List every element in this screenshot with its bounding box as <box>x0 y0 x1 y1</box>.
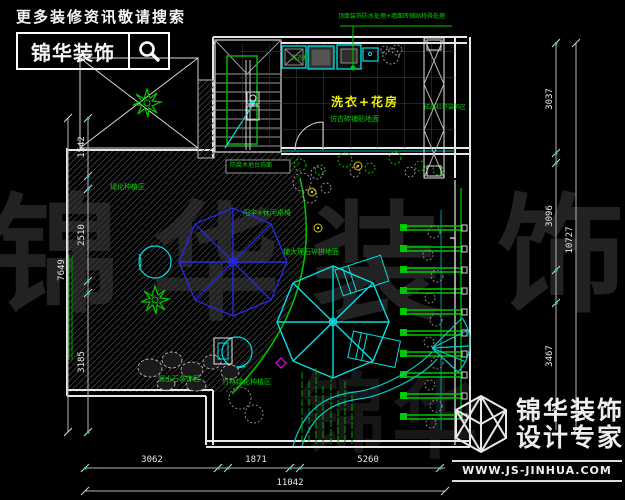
dim-bottom-2: 1871 <box>245 455 267 465</box>
note-washer: 洗衣机 <box>291 56 309 63</box>
dim-bottom-3: 5260 <box>357 455 379 465</box>
magnifier-icon <box>128 34 168 68</box>
note-railing: 成品栏杆装饰区 <box>424 105 466 112</box>
dim-left-2: 2510 <box>77 224 87 246</box>
note-deck: 防腐木地台饰面 <box>230 163 272 170</box>
dim-bottom-total: 11042 <box>276 478 303 488</box>
bamboo-grove <box>302 368 352 444</box>
company-logo-block: 锦华装饰 设计专家 WWW.JS-JINHUA.COM <box>452 392 625 498</box>
dim-right-total: 10727 <box>565 226 575 253</box>
note-planting: 绿化种植区 <box>110 184 145 192</box>
fan-steps <box>432 318 470 372</box>
note-top: 顶面装饰防水处理+墙面砖铺贴特殊处理 <box>338 14 445 21</box>
room-label: 洗衣+花房 <box>331 93 399 110</box>
brand-search-box: 锦华装饰 <box>16 32 170 70</box>
dim-left-3: 3185 <box>77 351 87 373</box>
dim-right-2: 3096 <box>545 205 555 227</box>
plant-symbol <box>133 89 161 117</box>
wood-deck-area <box>67 150 306 394</box>
light-marker <box>354 162 362 170</box>
dim-right-1: 3037 <box>545 88 555 110</box>
cube-logo-icon <box>452 392 510 456</box>
hip-roof-skylight <box>80 58 214 158</box>
light-marker <box>308 188 316 196</box>
brand-name: 锦华装饰 <box>18 34 128 68</box>
promo-header: 更多装修资讯敬请搜索 锦华装饰 <box>16 6 186 70</box>
note-rocks: 假山石装饰区 <box>158 376 200 384</box>
logo-brand: 锦华装饰 <box>516 397 624 424</box>
magenta-marker <box>276 358 286 368</box>
dim-left-1: 1542 <box>77 136 87 158</box>
planting-strip <box>293 152 443 203</box>
logo-tagline: 设计专家 <box>516 424 624 451</box>
note-marble: 铺大理石碎拼地面 <box>283 249 339 257</box>
search-hint-text: 更多装修资讯敬请搜索 <box>16 6 186 27</box>
note-floor: 仿古砖铺贴地面 <box>330 116 379 124</box>
note-umbrella: 阳伞+休闲桌椅 <box>243 210 291 218</box>
light-marker <box>314 224 322 232</box>
lounge-chair <box>335 255 389 296</box>
logo-website: WWW.JS-JINHUA.COM <box>452 460 622 482</box>
note-bamboo: 竹林绿化种植区 <box>222 379 271 387</box>
dim-left-total: 7649 <box>57 259 67 281</box>
cad-floorplan-screenshot: 锦 华 装 饰 锦 华 <box>0 0 625 500</box>
dim-bottom-1: 3062 <box>141 455 163 465</box>
dim-right-3: 3467 <box>545 345 555 367</box>
lounge-chair <box>348 331 401 367</box>
